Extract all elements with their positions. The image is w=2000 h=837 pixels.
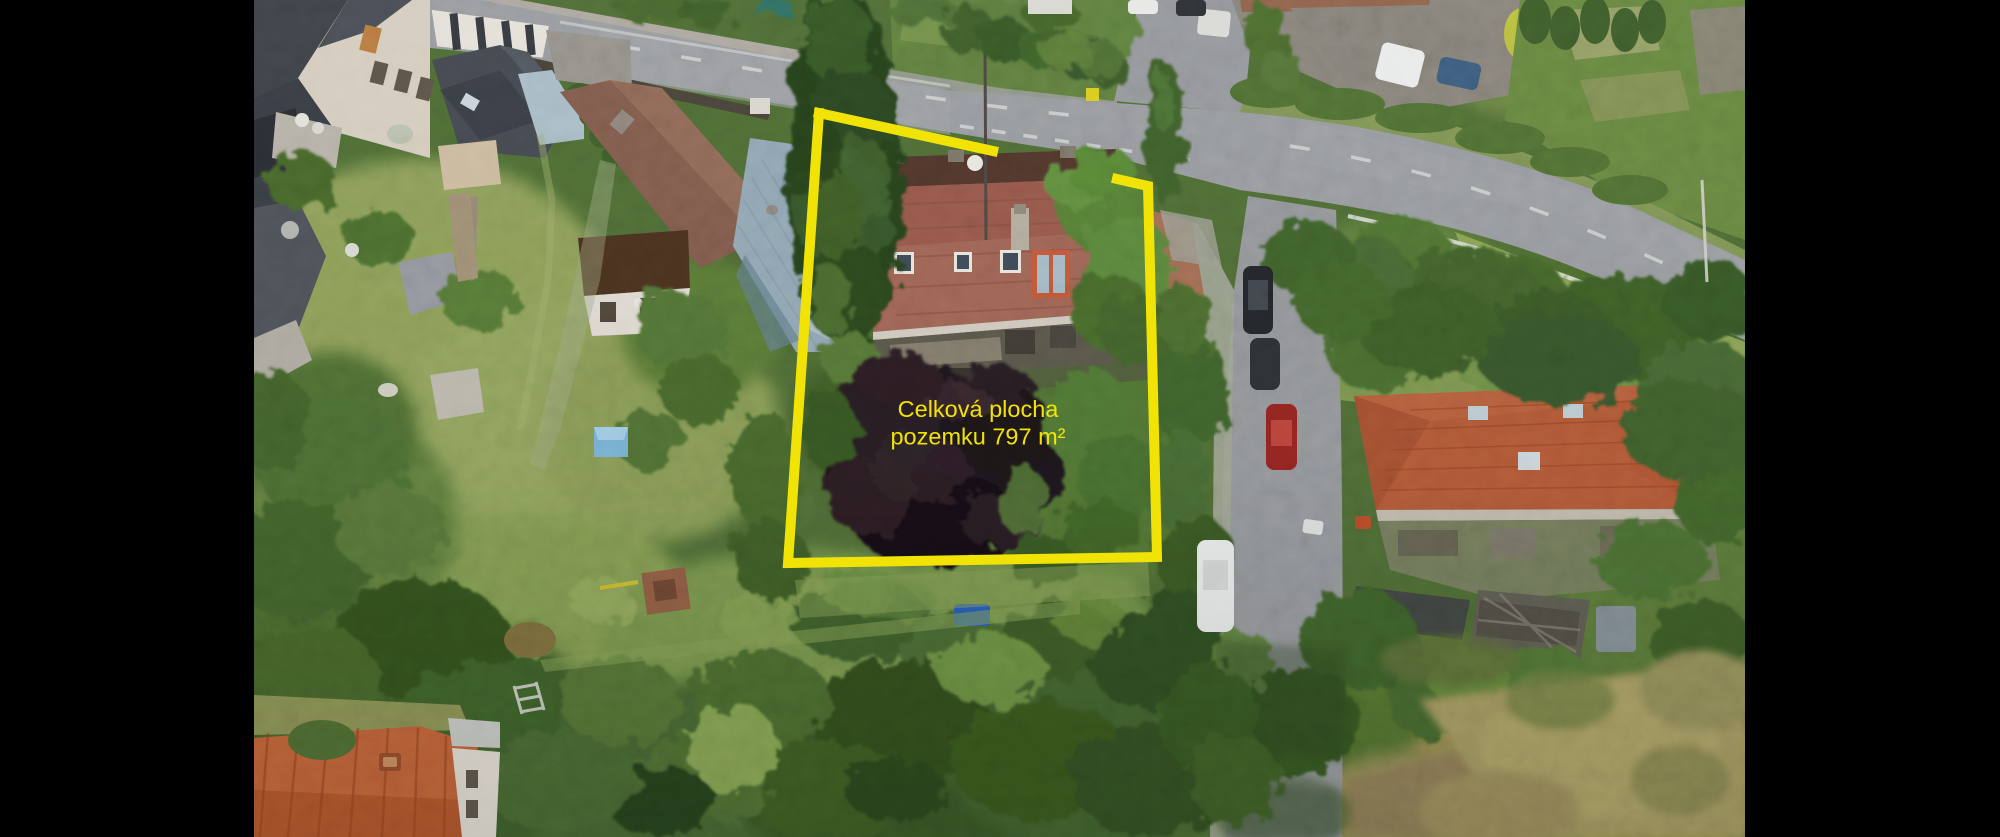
svg-text:Celková plocha: Celková plocha (898, 396, 1060, 422)
svg-text:pozemku 797 m²: pozemku 797 m² (890, 424, 1065, 450)
